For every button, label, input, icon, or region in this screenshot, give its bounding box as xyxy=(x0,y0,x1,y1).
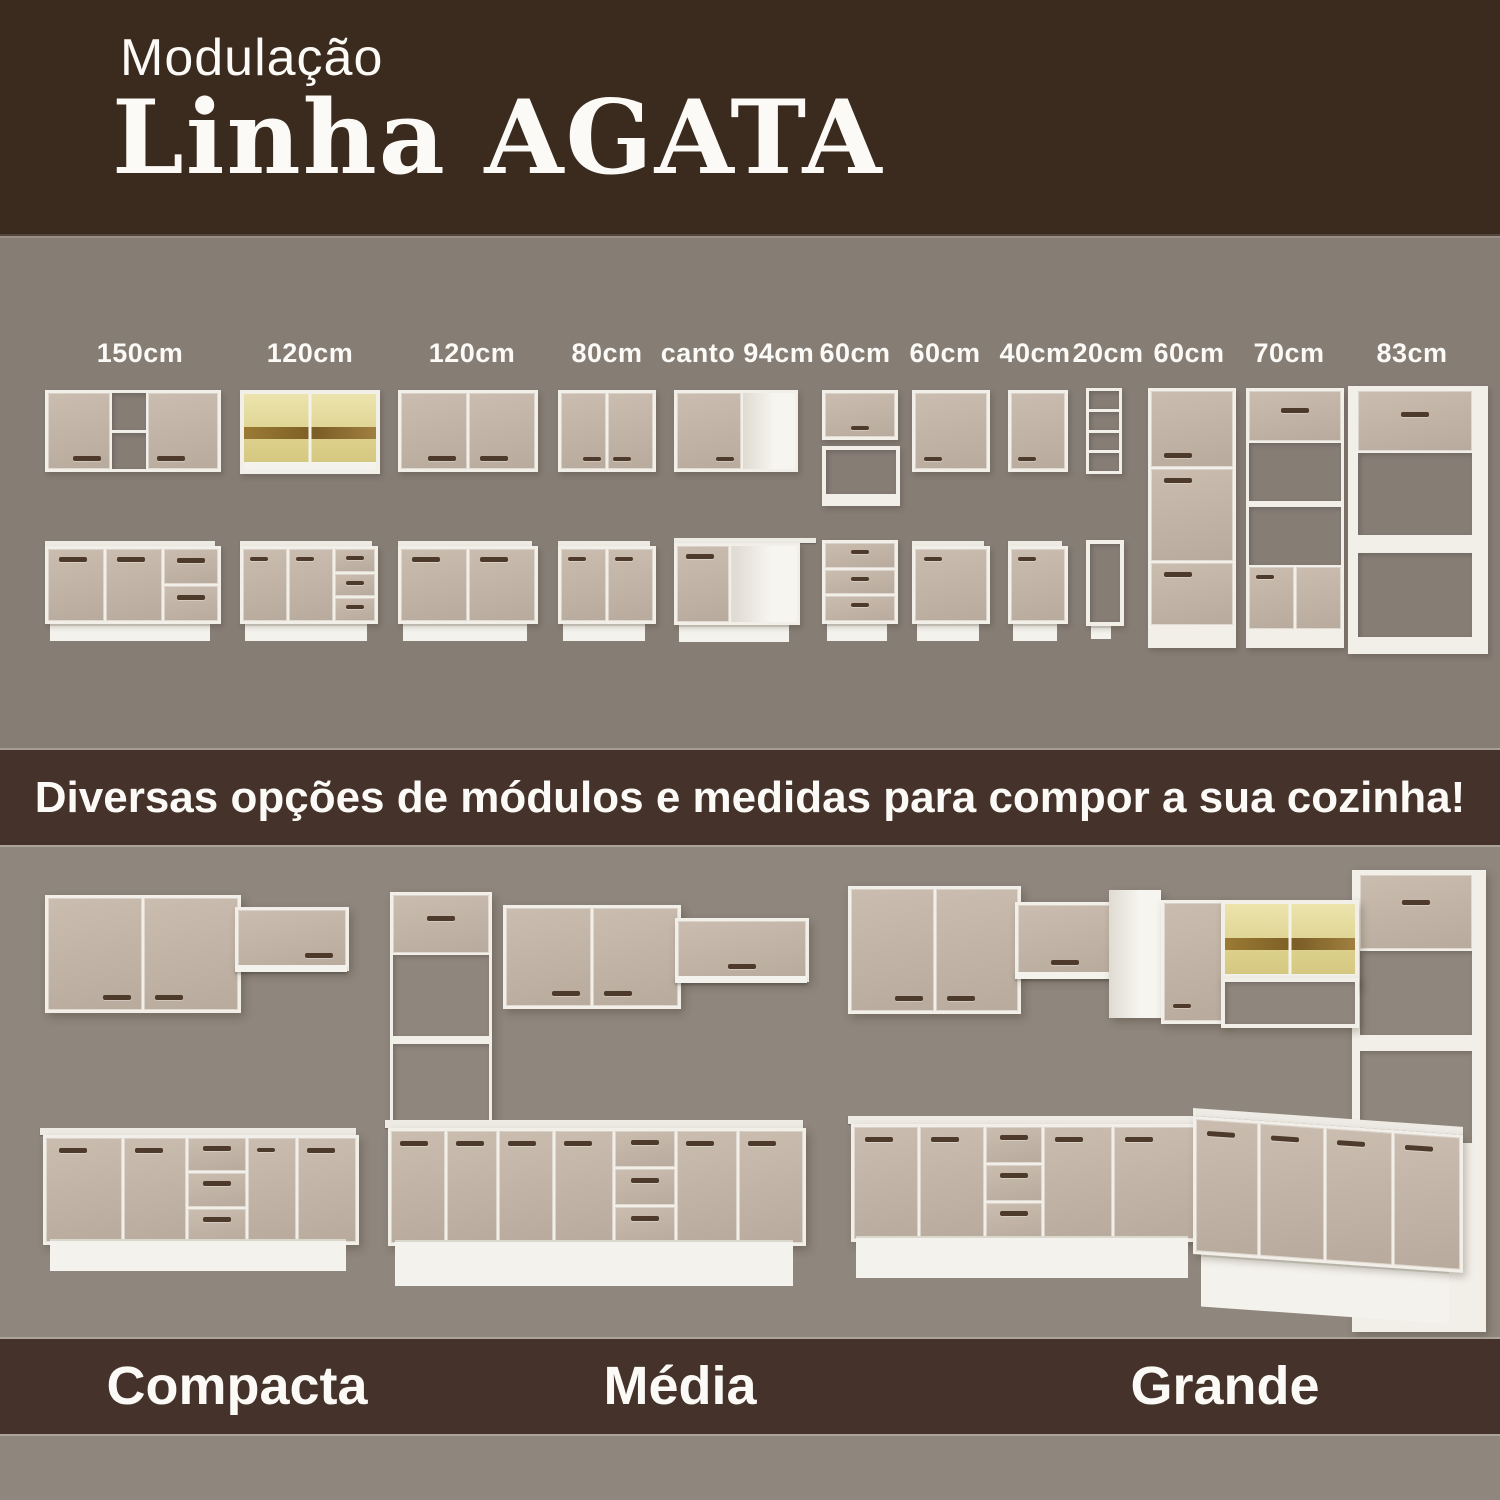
door-handle xyxy=(748,1141,776,1146)
plinth xyxy=(1358,639,1472,649)
wall-cabinet-underside xyxy=(675,976,807,983)
drawer xyxy=(335,549,375,572)
door-handle xyxy=(552,991,580,996)
wall-cabinet-corner-return xyxy=(1161,900,1227,1024)
wall-cabinet-stepped xyxy=(1015,902,1115,978)
tall-cabinet-60cm xyxy=(1148,388,1236,648)
wall-cabinet-150cm xyxy=(45,390,221,472)
drawer-handle xyxy=(203,1181,231,1186)
corner-return-door xyxy=(731,546,797,622)
door-handle xyxy=(307,1148,335,1153)
door-handle xyxy=(1018,457,1036,461)
glass-door xyxy=(244,394,376,470)
kitchen-compacta xyxy=(40,885,370,1295)
base-pullout-20cm xyxy=(1086,540,1116,639)
door-handle xyxy=(480,456,508,461)
wall-cabinet-underside xyxy=(235,965,347,972)
door-handle xyxy=(851,426,869,430)
open-niche-section xyxy=(393,955,489,1125)
wall-cabinet-40cm xyxy=(1008,390,1068,472)
base-cabinet-run-left xyxy=(851,1124,1199,1242)
wall-cabinet xyxy=(45,895,241,1013)
cabinet-door xyxy=(1249,391,1341,441)
cabinet-door xyxy=(1196,1119,1258,1255)
plinth xyxy=(50,624,210,641)
cabinet-door xyxy=(148,393,218,469)
cabinet-door xyxy=(106,549,162,621)
base-cabinet-run xyxy=(388,1128,806,1246)
cabinet-door xyxy=(1260,1124,1324,1260)
banner-text: Diversas opções de módulos e medidas par… xyxy=(0,750,1500,845)
door-handle xyxy=(117,557,145,562)
cabinet-door xyxy=(1151,469,1233,561)
door-handle xyxy=(1405,1145,1433,1152)
door-handle xyxy=(480,557,508,562)
door-handle xyxy=(1281,408,1309,413)
cabinet-door xyxy=(243,549,287,621)
open-shelf-20cm xyxy=(1086,388,1122,474)
drawer-stack xyxy=(986,1127,1042,1239)
tall-tower xyxy=(390,892,492,1128)
kitchen-size-label: Média xyxy=(530,1339,830,1434)
plinth xyxy=(1013,624,1057,641)
kitchen-size-label: Compacta xyxy=(87,1339,387,1434)
glass-door-divider xyxy=(1289,904,1292,974)
door-handle xyxy=(1271,1135,1299,1142)
wall-cabinet xyxy=(503,905,681,1009)
drawer xyxy=(986,1165,1042,1201)
base-cabinet-body xyxy=(1008,546,1068,624)
open-niche xyxy=(1358,553,1472,637)
wall-cabinet xyxy=(848,886,1021,1014)
door-handle xyxy=(931,1137,959,1142)
plinth xyxy=(1249,631,1341,645)
cabinet-door xyxy=(1164,903,1224,1021)
cabinet-door xyxy=(851,889,934,1011)
drawer-handle xyxy=(851,550,869,554)
niche-cell xyxy=(1249,443,1341,501)
middle-shelf xyxy=(1358,537,1472,551)
door-handle xyxy=(1401,412,1429,417)
wall-cabinet-glass xyxy=(1221,900,1359,986)
door-handle xyxy=(686,554,714,559)
module-size-label: 150cm xyxy=(70,338,210,372)
drawer xyxy=(164,586,218,621)
drawer-handle xyxy=(1000,1135,1028,1140)
niche-cell xyxy=(393,955,489,1036)
door-handle xyxy=(135,1148,163,1153)
base-cabinet-120cm-drawers xyxy=(240,541,372,641)
kitchen-media xyxy=(385,880,803,1315)
base-cabinet-body xyxy=(45,546,221,624)
corner-wall-cabinet-94cm xyxy=(674,390,798,472)
cabinet-door xyxy=(238,910,346,968)
cabinet-door xyxy=(854,1127,918,1239)
countertop xyxy=(40,1128,356,1135)
cabinet-door xyxy=(1249,567,1294,629)
drawer xyxy=(164,549,218,584)
plinth xyxy=(245,624,367,641)
shelf-cell xyxy=(1089,453,1119,471)
tall-cabinet-70cm xyxy=(1246,388,1344,648)
drawer-stack xyxy=(335,549,375,621)
cabinet-door xyxy=(391,1131,445,1243)
door-handle xyxy=(412,557,440,562)
door-handle xyxy=(564,1141,592,1146)
drawer-handle xyxy=(631,1140,659,1145)
plinth xyxy=(403,624,527,641)
cabinet-door xyxy=(593,908,678,1006)
door-handle xyxy=(296,557,314,561)
cabinet-door xyxy=(469,549,535,621)
cabinet-door xyxy=(1360,875,1472,949)
cabinet-door xyxy=(248,1138,296,1242)
pullout-cell xyxy=(1090,544,1120,622)
cabinet-door xyxy=(1011,393,1065,469)
door-handle xyxy=(568,557,586,561)
niche-cell xyxy=(1225,982,1355,1024)
cabinet-door xyxy=(1326,1128,1392,1265)
cabinet-door xyxy=(1151,563,1233,625)
door-handle xyxy=(583,457,601,461)
cabinet-door xyxy=(506,908,591,1006)
cabinet-door xyxy=(825,393,895,437)
drawer-stack xyxy=(822,540,898,624)
door-handle xyxy=(613,457,631,461)
product-poster: Modulação Linha AGATA 150cm 120cm 120cm … xyxy=(0,0,1500,1500)
module-size-label: 70cm xyxy=(1219,338,1359,372)
door-handle xyxy=(1164,572,1192,577)
door-handle xyxy=(1018,557,1036,561)
door-handle xyxy=(924,557,942,561)
drawer-stack xyxy=(188,1138,246,1242)
cabinet-door xyxy=(48,393,110,469)
drawer xyxy=(188,1173,246,1206)
plinth xyxy=(679,625,789,642)
door-handle xyxy=(1125,1137,1153,1142)
door-handle xyxy=(1173,1004,1191,1008)
cabinet-door xyxy=(144,898,238,1010)
module-size-label: 120cm xyxy=(240,338,380,372)
cabinet-door xyxy=(298,1138,356,1242)
kitchen-grande xyxy=(840,858,1470,1333)
base-cabinet-body xyxy=(558,546,656,624)
wall-cabinet-80cm xyxy=(558,390,656,472)
cabinet-door xyxy=(936,889,1019,1011)
open-niche xyxy=(1358,453,1472,535)
drawer xyxy=(335,574,375,597)
cabinet-door xyxy=(1358,391,1472,451)
cabinet-door xyxy=(1114,1127,1196,1239)
cabinet-door xyxy=(608,393,653,469)
niche-cell xyxy=(393,1044,489,1125)
door-handle xyxy=(716,457,734,461)
drawer-stack xyxy=(615,1131,675,1243)
corner-panel xyxy=(1109,890,1161,1018)
base-cabinet-60cm xyxy=(912,541,984,641)
drawer-handle xyxy=(346,605,364,609)
middle-shelf xyxy=(1360,1037,1472,1049)
kitchen-size-label: Grande xyxy=(1075,1339,1375,1434)
base-cabinet-40cm xyxy=(1008,541,1062,641)
wall-cabinet-60cm-single xyxy=(912,390,990,472)
door-handle xyxy=(157,456,185,461)
header-band: Modulação Linha AGATA xyxy=(0,0,1500,234)
door-handle xyxy=(59,1148,87,1153)
door-handle xyxy=(155,995,183,1000)
cabinet-door xyxy=(739,1131,803,1243)
plinth xyxy=(1091,626,1111,639)
drawer-handle xyxy=(1000,1173,1028,1178)
countertop xyxy=(385,1120,803,1128)
door-handle xyxy=(427,916,455,921)
door-handle xyxy=(1055,1137,1083,1142)
door-handle xyxy=(728,964,756,969)
cabinet-bottom xyxy=(244,462,376,470)
base-cabinet-120cm xyxy=(398,541,532,641)
drawer xyxy=(188,1209,246,1242)
glass-door xyxy=(1225,904,1355,982)
drawer xyxy=(188,1138,246,1171)
wall-cabinet-stepped xyxy=(675,918,809,982)
plinth xyxy=(563,624,645,641)
drawer-handle xyxy=(346,556,364,560)
open-niche xyxy=(1360,951,1472,1035)
corner-base-cabinet-94cm xyxy=(674,538,794,642)
cabinet-door xyxy=(677,393,741,469)
drawer-handle xyxy=(177,558,205,563)
door-handle xyxy=(1256,575,1274,579)
base-cabinet-body xyxy=(398,546,538,624)
cabinet-door xyxy=(677,1131,737,1243)
cabinet-door xyxy=(499,1131,553,1243)
drawer-handle xyxy=(1000,1211,1028,1216)
cabinet-door xyxy=(1151,391,1233,467)
cabinet-door xyxy=(678,921,806,979)
base-cabinet-body xyxy=(674,543,800,625)
module-size-label: 83cm xyxy=(1342,338,1482,372)
door-handle xyxy=(103,995,131,1000)
pullout-body xyxy=(1086,540,1124,626)
cabinet-door xyxy=(48,898,142,1010)
drawer xyxy=(986,1127,1042,1163)
cabinet-door xyxy=(46,1138,122,1242)
base-cabinet-60cm-drawers xyxy=(822,540,892,641)
glass-door-divider xyxy=(309,394,312,462)
door-handle xyxy=(1337,1140,1365,1147)
base-cabinet-80cm xyxy=(558,541,650,641)
countertop xyxy=(848,1116,1196,1124)
wall-cabinet-underside xyxy=(1015,972,1113,979)
cabinet-door xyxy=(555,1131,613,1243)
base-cabinet-body xyxy=(912,546,990,624)
drawer-handle xyxy=(631,1178,659,1183)
door-handle xyxy=(1051,960,1079,965)
wall-cabinet-glass-120cm xyxy=(240,390,380,474)
open-niche-section xyxy=(1249,443,1341,565)
cabinet-door xyxy=(561,393,606,469)
door-handle xyxy=(865,1137,893,1142)
plinth xyxy=(1151,627,1233,645)
cabinet-door xyxy=(915,549,987,621)
poster-title: Linha AGATA xyxy=(112,78,884,198)
base-cabinet-run xyxy=(43,1135,359,1245)
door-handle xyxy=(924,457,942,461)
drawer xyxy=(825,543,895,568)
door-handle xyxy=(400,1141,428,1146)
drawer xyxy=(615,1207,675,1243)
open-niche-60cm xyxy=(822,446,900,506)
plinth xyxy=(917,624,979,641)
cabinet-door xyxy=(677,546,729,622)
door-handle xyxy=(604,991,632,996)
drawer-stack xyxy=(164,549,218,621)
cabinet-door xyxy=(561,549,606,621)
cabinet-door xyxy=(1296,567,1341,629)
drawer-handle xyxy=(177,595,205,600)
cabinet-door xyxy=(401,393,467,469)
door-handle xyxy=(1207,1131,1235,1138)
door-handle xyxy=(257,1148,275,1152)
drawer xyxy=(825,596,895,621)
plinth xyxy=(50,1239,346,1271)
cabinet-door xyxy=(1044,1127,1112,1239)
cabinet-door xyxy=(1394,1133,1460,1270)
cabinet-door xyxy=(447,1131,497,1243)
door-handle xyxy=(1164,453,1192,458)
cabinet-door xyxy=(920,1127,984,1239)
shelf-cell xyxy=(112,433,146,470)
drawer-handle xyxy=(631,1216,659,1221)
tall-tower-83cm xyxy=(1348,386,1488,654)
door-handle xyxy=(895,996,923,1001)
door-handle xyxy=(1402,900,1430,905)
cabinet-door xyxy=(1018,905,1112,975)
base-cabinet-body xyxy=(240,546,378,624)
cabinet-door xyxy=(915,393,987,469)
cabinet-door xyxy=(393,895,489,953)
plinth xyxy=(827,624,887,641)
door-handle xyxy=(305,953,333,958)
niche-bottom xyxy=(826,496,896,502)
open-niche-under-glass xyxy=(1221,978,1359,1028)
door-handle xyxy=(615,557,633,561)
cabinet-door xyxy=(289,549,333,621)
module-size-label: 120cm xyxy=(402,338,542,372)
drawer-handle xyxy=(346,581,364,585)
plinth xyxy=(856,1236,1188,1278)
wall-cabinet-stepped xyxy=(235,907,349,971)
cabinet-door xyxy=(124,1138,186,1242)
plinth xyxy=(395,1240,793,1286)
door-handle xyxy=(456,1141,484,1146)
door-handle xyxy=(1164,478,1192,483)
base-cabinet-150cm xyxy=(45,541,215,641)
cabinet-door xyxy=(608,549,653,621)
drawer-handle xyxy=(851,603,869,607)
shelf-cell xyxy=(1089,391,1119,409)
door-handle xyxy=(250,557,268,561)
door-handle xyxy=(59,557,87,562)
drawer xyxy=(335,598,375,621)
drawer-handle xyxy=(203,1217,231,1222)
shelf-cell xyxy=(1089,412,1119,430)
door-handle xyxy=(508,1141,536,1146)
cabinet-door xyxy=(1011,549,1065,621)
drawer xyxy=(986,1203,1042,1239)
cabinet-door xyxy=(469,393,535,469)
niche-cell xyxy=(826,450,896,494)
drawer xyxy=(615,1131,675,1167)
open-shelf xyxy=(112,393,146,469)
corner-side xyxy=(1109,890,1161,1018)
drawer xyxy=(825,570,895,595)
door-handle xyxy=(73,456,101,461)
base-cabinet-run-right xyxy=(1193,1108,1463,1362)
door-handle xyxy=(686,1141,714,1146)
bottom-doors xyxy=(1249,567,1341,629)
shelf-cell xyxy=(1089,433,1119,451)
cabinet-door xyxy=(401,549,467,621)
door-handle xyxy=(428,456,456,461)
cabinet-door xyxy=(48,549,104,621)
wall-cabinet-60cm xyxy=(822,390,898,440)
wall-cabinet-120cm xyxy=(398,390,538,472)
door-handle xyxy=(947,996,975,1001)
base-cabinet-body xyxy=(1193,1116,1463,1273)
drawer-handle xyxy=(203,1146,231,1151)
shelf-cell xyxy=(112,393,146,430)
drawer xyxy=(615,1169,675,1205)
drawer-handle xyxy=(851,577,869,581)
niche-cell xyxy=(1249,507,1341,565)
corner-side-panel xyxy=(743,393,795,469)
